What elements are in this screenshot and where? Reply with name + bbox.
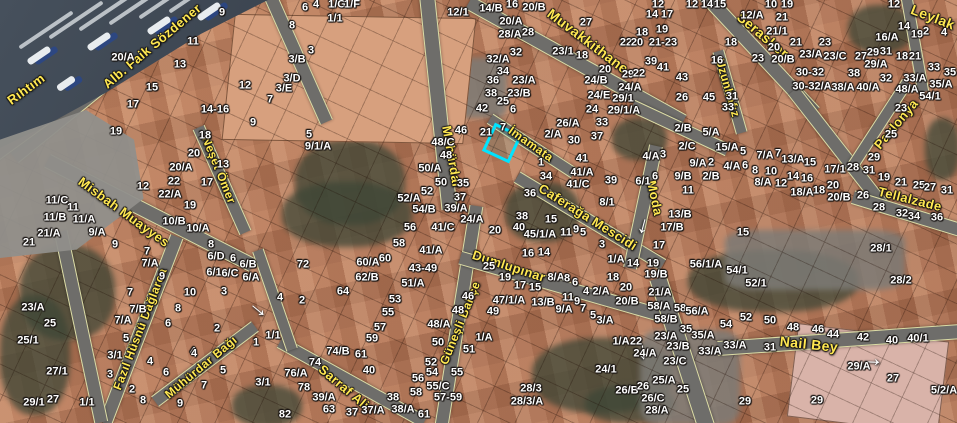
parcel-label: 42 — [857, 333, 869, 344]
parcel-label: 6 — [742, 161, 748, 172]
parcel-label: 56/A — [685, 307, 708, 318]
parcel-label: 4 — [147, 357, 153, 368]
map-viewport[interactable]: RıhtımAlb. Faik SözdenerMisbah MuayyesNe… — [0, 0, 957, 423]
parcel-label: 33/A — [723, 341, 746, 352]
parcel-label: 9/1/A — [305, 142, 331, 153]
parcel-label: 14 — [701, 0, 713, 11]
parcel-label: 17 — [514, 281, 526, 292]
parcel-label: 12/A — [740, 11, 763, 22]
parcel-label: 10/B — [162, 217, 185, 228]
parcel-label: 2/B — [674, 124, 691, 135]
parcel-label: 3/1 — [255, 378, 270, 389]
parcel-label: 10/A — [186, 224, 209, 235]
parcel-label: 7 — [144, 247, 150, 258]
parcel-label: 39/A — [312, 393, 335, 404]
parcel-label: 14/B — [479, 4, 502, 15]
parcel-label: 14 — [627, 259, 639, 270]
parcel-label: 16 — [801, 174, 813, 185]
parcel-label: 8 — [752, 166, 758, 177]
parcel-label: 64 — [337, 287, 349, 298]
parcel-label: 45/1/A — [524, 230, 556, 241]
parcel-label: 9/A — [689, 159, 706, 170]
parcel-label: 30 — [568, 136, 580, 147]
parcel-label: 52 — [740, 313, 752, 324]
parcel-label: 8 — [140, 396, 146, 407]
parcel-label: 1/F — [344, 0, 360, 11]
parcel-label: 21 — [790, 38, 802, 49]
parcel-label: 61 — [355, 350, 367, 361]
parcel-label: 54/1 — [919, 92, 940, 103]
parcel-label: 2 — [129, 385, 135, 396]
parcel-label: 23 — [895, 104, 907, 115]
parcel-label: 36 — [487, 76, 499, 87]
parcel-label: 60/A — [356, 258, 379, 269]
parcel-label: 53 — [389, 295, 401, 306]
parcel-label: 23/1 — [552, 47, 573, 58]
parcel-label: 6 — [165, 319, 171, 330]
parcel-label: 17/B — [660, 223, 683, 234]
parcel-label: 29/A — [864, 60, 887, 71]
parcel-label: 15 — [804, 158, 816, 169]
parcel-label: 31 — [764, 343, 776, 354]
parcel-label: 56 — [404, 223, 416, 234]
parcel-label: 1/1 — [327, 14, 342, 25]
parcel-label: 9/B — [674, 172, 691, 183]
parcel-label: 11/B — [44, 213, 67, 224]
parcel-label: 76/A — [284, 369, 307, 380]
parcel-label: 58 — [410, 388, 422, 399]
parcel-label: 29 — [739, 397, 751, 408]
parcel-label: 8/A — [754, 178, 771, 189]
parcel-label: 20 — [489, 226, 501, 237]
parcel-label: 57-59 — [434, 393, 462, 404]
parcel-label: 20/A — [169, 163, 192, 174]
parcel-label: 38/A — [391, 405, 414, 416]
parcel-label: 13/A — [781, 155, 804, 166]
parcel-label: 48/A — [427, 320, 450, 331]
parcel-label: 30-32 — [796, 68, 824, 79]
parcel-label: 30-32/A — [792, 82, 831, 93]
parcel-label: 20/B — [615, 297, 638, 308]
parcel-label: 19 — [184, 201, 196, 212]
parcel-label: 1 — [538, 158, 544, 169]
parcel-label: 3 — [599, 240, 605, 251]
parcel-label: 20/A — [499, 17, 522, 28]
parcel-label: 55 — [451, 368, 463, 379]
parcel-label: 48 — [787, 323, 799, 334]
parcel-label: 20/A — [111, 53, 134, 64]
parcel-label: 11 — [67, 203, 79, 214]
parcel-label: 46 — [812, 325, 824, 336]
parcel-label: 9/A — [88, 228, 105, 239]
parcel-label: 7 — [775, 149, 781, 160]
parcel-label: 41/C — [431, 223, 454, 234]
parcel-label: 18 — [199, 131, 211, 142]
parcel-label: 7/B — [129, 305, 146, 316]
parcel-label: 33 — [722, 103, 734, 114]
parcel-label: 24/B — [584, 76, 607, 87]
parcel-label: 21 — [23, 238, 35, 249]
parcel-label: 20 — [768, 43, 780, 54]
parcel-label: 34 — [540, 172, 552, 183]
parcel-label: 54 — [720, 320, 732, 331]
parcel-label: 14 — [787, 172, 799, 183]
parcel-label: 31 — [880, 47, 892, 58]
parcel-label: 33 — [928, 63, 940, 74]
parcel-label: 21 — [776, 13, 788, 24]
parcel-label: 1/A — [607, 255, 624, 266]
parcel-label: 39 — [645, 57, 657, 68]
parcel-label: 4/A — [723, 162, 740, 173]
parcel-label: 32 — [896, 209, 908, 220]
parcel-label: 21 — [909, 52, 921, 63]
parcel-label: 37 — [346, 408, 358, 419]
parcel-label: 32 — [880, 74, 892, 85]
parcel-label: 29/1/A — [608, 106, 640, 117]
parcel-label: 1/1 — [79, 398, 94, 409]
parcel-label: 5 — [740, 147, 746, 158]
parcel-label: 19 — [781, 0, 793, 11]
parcel-label: 50 — [432, 338, 444, 349]
parcel-label: 17 — [201, 178, 213, 189]
parcel-label: 27 — [580, 18, 592, 29]
parcel-label: 20 — [827, 181, 839, 192]
parcel-label: 41 — [576, 154, 588, 165]
parcel-label: 3/A — [596, 316, 613, 327]
parcel-label: 18 — [813, 186, 825, 197]
parcel-label: 26 — [637, 382, 649, 393]
parcel-label: 23/A — [21, 303, 44, 314]
parcel-label: 35 — [944, 68, 956, 79]
parcel-label: 82 — [279, 410, 291, 421]
parcel-label: 13 — [217, 160, 229, 171]
parcel-label: 49 — [487, 307, 499, 318]
parcel-label: 32/A — [486, 55, 509, 66]
parcel-label: 3 — [107, 370, 113, 381]
parcel-label: 22/A — [158, 190, 181, 201]
parcel-label: 21/A — [37, 229, 60, 240]
parcel-label: 38 — [848, 69, 860, 80]
parcel-label: 21/1 — [766, 27, 787, 38]
parcel-label: 11/A — [73, 215, 96, 226]
parcel-label: 7/A — [141, 259, 158, 270]
parcel-label: 3 — [221, 287, 227, 298]
parcel-label: 2/B — [702, 172, 719, 183]
parcel-label: 26 — [857, 191, 869, 202]
parcel-label: 7/A — [114, 316, 131, 327]
parcel-label: 43-49 — [409, 264, 437, 275]
parcel-label: 23/C — [823, 52, 846, 63]
parcel-label: 25/1 — [17, 336, 38, 347]
parcel-label: 58 — [393, 239, 405, 250]
parcel-label: 20 — [188, 149, 200, 160]
parcel-label: 24/A — [460, 215, 483, 226]
parcel-label: 27 — [887, 374, 899, 385]
parcel-label: 8 — [208, 240, 214, 251]
parcel-label: 3/B — [288, 55, 305, 66]
parcel-label: 11 — [562, 293, 574, 304]
parcel-label: 40 — [886, 336, 898, 347]
parcel-label: 11 — [560, 228, 572, 239]
parcel-label: 23/C — [663, 357, 686, 368]
parcel-label: 17 — [661, 10, 673, 21]
parcel-label: 28/A — [645, 406, 668, 417]
parcel-label: 59 — [366, 334, 378, 345]
parcel-label: 34 — [908, 212, 920, 223]
parcel-label: 21/A — [648, 288, 671, 299]
parcel-label: 7 — [267, 95, 273, 106]
parcel-label: 29/1 — [612, 94, 633, 105]
parcel-label: 26/B — [615, 386, 638, 397]
parcel-label: 38 — [387, 393, 399, 404]
parcel-label: 12 — [239, 81, 251, 92]
parcel-label: 48 — [452, 306, 464, 317]
parcel-label: 19 — [911, 30, 923, 41]
parcel-label: 54/1 — [726, 266, 747, 277]
parcel-label: 8 — [289, 21, 295, 32]
parcel-label: 63 — [323, 405, 335, 416]
parcel-label: 40 — [363, 366, 375, 377]
parcel-label: 60 — [379, 254, 391, 265]
parcel-label: 2/A — [592, 287, 609, 298]
parcel-label: 29/1 — [23, 398, 44, 409]
parcel-label: 7 — [580, 304, 586, 315]
parcel-label: 8 — [175, 304, 181, 315]
parcel-label: 6 — [230, 254, 236, 265]
parcel-label: 72 — [297, 260, 309, 271]
parcel-label: 6/1 — [635, 177, 650, 188]
parcel-label: 23/A — [512, 76, 535, 87]
parcel-label: 43 — [676, 73, 688, 84]
parcel-label: 54 — [426, 368, 438, 379]
parcel-label: 9 — [219, 8, 225, 19]
parcel-label: 44 — [827, 330, 839, 341]
parcel-label: 11 — [682, 186, 694, 197]
parcel-label: 15 — [146, 83, 158, 94]
parcel-label: 9/A — [555, 305, 572, 316]
parcel-label: 6 — [163, 368, 169, 379]
parcel-label: 41/A — [419, 246, 442, 257]
parcel-label: 35 — [680, 325, 692, 336]
parcel-label: 35 — [457, 179, 469, 190]
parcel-label: 48 — [440, 151, 452, 162]
parcel-label: 37 — [591, 132, 603, 143]
parcel-label: 3/E — [276, 84, 293, 95]
parcel-label: 26/C — [641, 394, 664, 405]
parcel-label: 4 — [583, 287, 589, 298]
parcel-label: 55 — [382, 308, 394, 319]
parcel-label: 48/C — [431, 138, 454, 149]
parcel-label: 51 — [463, 345, 475, 356]
parcel-label: 52 — [421, 187, 433, 198]
parcel-label: 28/3 — [520, 384, 541, 395]
parcel-label: 18 — [607, 273, 619, 284]
parcel-label: 20/B — [771, 55, 794, 66]
parcel-label: 15/A — [715, 143, 738, 154]
parcel-label: 9 — [250, 118, 256, 129]
parcel-label: 10 — [184, 288, 196, 299]
parcel-label: 29 — [867, 48, 879, 59]
parcel-label: 74 — [309, 358, 321, 369]
parcel-label: 54/B — [412, 205, 435, 216]
parcel-label: 18 — [576, 51, 588, 62]
parcel-label: 6/D — [207, 252, 224, 263]
parcel-label: 9 — [573, 225, 579, 236]
parcel-label: 28/3/A — [511, 397, 543, 408]
parcel-label: 4 — [313, 0, 319, 11]
parcel-label: 6 — [572, 278, 578, 289]
parcel-label: 23/B — [507, 89, 530, 100]
parcel-label: 22 — [168, 177, 180, 188]
parcel-label: 1 — [253, 338, 259, 349]
parcel-label: 33 — [596, 118, 608, 129]
parcel-label: 1/1 — [265, 331, 280, 342]
parcel-label: 17/1 — [824, 165, 845, 176]
parcel-label: 16 — [506, 0, 518, 11]
parcel-label: 27/1 — [46, 367, 67, 378]
parcel-label: 29 — [868, 153, 880, 164]
parcel-label: 32 — [510, 48, 522, 59]
parcel-label: 16 — [711, 56, 723, 67]
parcel-label: 46 — [462, 292, 474, 303]
parcel-label: 37/A — [361, 406, 384, 417]
parcel-label: 4 — [277, 293, 283, 304]
parcel-label: 5/2/A — [931, 386, 957, 397]
parcel-label: 6 — [302, 3, 308, 14]
parcel-label: 42 — [476, 104, 488, 115]
parcel-label: 35/A — [691, 331, 714, 342]
parcel-label: 12 — [137, 182, 149, 193]
parcel-label: 78 — [298, 383, 310, 394]
parcel-label: 16 — [522, 249, 534, 260]
parcel-label: 38/A — [831, 83, 854, 94]
parcel-label: 41/C — [566, 180, 589, 191]
parcel-label: 18 — [896, 52, 908, 63]
parcel-label: 15 — [714, 0, 726, 11]
parcel-label: 9 — [177, 399, 183, 410]
parcel-label: 18/A — [790, 188, 813, 199]
parcel-label: 16/A — [875, 33, 898, 44]
parcel-label: 22 — [633, 69, 645, 80]
parcel-label: 24/E — [588, 91, 611, 102]
parcel-label: 21 — [480, 128, 492, 139]
parcel-label: 36 — [931, 213, 943, 224]
parcel-label: 28 — [873, 203, 885, 214]
parcel-label: 40/A — [856, 83, 879, 94]
parcel-label: 6 — [652, 172, 658, 183]
parcel-label: 2 — [923, 27, 929, 38]
parcel-label: 5 — [306, 130, 312, 141]
parcel-label: 36 — [524, 189, 536, 200]
parcel-label: 1/A — [475, 333, 492, 344]
parcel-label: 13/B — [531, 298, 554, 309]
parcel-label: 24 — [586, 105, 598, 116]
parcel-label: 22 — [630, 337, 642, 348]
parcel-label: 5 — [220, 366, 226, 377]
parcel-label: 2/A — [544, 130, 561, 141]
parcel-label: 74/B — [326, 347, 349, 358]
parcel-label: 7/A — [756, 151, 773, 162]
parcel-label: 46 — [455, 126, 467, 137]
parcel-label: 48/A — [895, 85, 918, 96]
parcel-label: 6/1 — [206, 268, 221, 279]
parcel-label: 62/B — [355, 273, 378, 284]
parcel-label: 3/1 — [107, 351, 122, 362]
parcel-label: 1/A — [612, 337, 629, 348]
parcel-label: 5/A — [702, 128, 719, 139]
parcel-label: 11/C — [46, 196, 69, 207]
parcel-label: 8/A — [547, 273, 564, 284]
parcel-label: 52/1 — [745, 279, 766, 290]
parcel-label: 9 — [159, 272, 165, 283]
parcel-label: 24/A — [633, 349, 656, 360]
parcel-label: 15 — [545, 215, 557, 226]
parcel-label: 29 — [811, 396, 823, 407]
parcel-label: 3 — [660, 150, 666, 161]
parcel-label: 10 — [765, 0, 777, 11]
parcel-label: 14 — [538, 248, 550, 259]
parcel-label: 2 — [299, 296, 305, 307]
parcel-label: 14 — [898, 22, 910, 33]
parcel-label: 8/1 — [599, 198, 614, 209]
parcel-label: 23/B — [666, 342, 689, 353]
parcel-label: 40/1 — [907, 334, 928, 345]
parcel-label: 24/1 — [595, 365, 616, 376]
parcel-label: 2 — [214, 324, 220, 335]
parcel-label: 50 — [764, 316, 776, 327]
parcel-label: 20/B — [827, 193, 850, 204]
parcel-label: 31 — [941, 186, 953, 197]
parcel-label: 15 — [529, 283, 541, 294]
parcel-label: 56/1/A — [690, 260, 722, 271]
parcel-label: 6 — [510, 105, 516, 116]
parcel-label: 7 — [500, 123, 506, 134]
parcel-label: 4 — [191, 349, 197, 360]
parcel-label: 27 — [924, 183, 936, 194]
parcel-label: 21 — [895, 178, 907, 189]
parcel-label: 21-23 — [649, 38, 677, 49]
parcel-label: 12 — [775, 179, 787, 190]
parcel-label: 41/A — [570, 168, 593, 179]
parcel-label: 7 — [201, 381, 207, 392]
parcel-label: 4 — [941, 28, 947, 39]
parcel-label: 51/A — [401, 279, 424, 290]
parcel-label: 50 — [435, 178, 447, 189]
parcel-label: 33/A — [698, 347, 721, 358]
parcel-label: 28/2 — [890, 276, 911, 287]
parcel-label: 12/1 — [447, 8, 468, 19]
parcel-label: 17 — [127, 100, 139, 111]
parcel-label: 2/C — [678, 142, 695, 153]
parcel-label: 14-16 — [201, 105, 229, 116]
parcel-label: 20 — [631, 38, 643, 49]
parcel-label: 41 — [657, 63, 669, 74]
parcel-label: 19 — [499, 273, 511, 284]
parcel-label: 39 — [605, 176, 617, 187]
parcel-label: 13 — [174, 60, 186, 71]
parcel-label: 11 — [187, 37, 199, 48]
parcel-label: 19/B — [644, 270, 667, 281]
parcel-label: 12 — [686, 0, 698, 11]
parcel-label: 35/A — [929, 80, 952, 91]
parcel-label: 7 — [127, 288, 133, 299]
parcel-label: 5 — [580, 228, 586, 239]
parcel-label: 6/C — [221, 269, 238, 280]
parcel-label: 28/1 — [870, 244, 891, 255]
parcel-label: 25 — [44, 319, 56, 330]
parcel-label: 2 — [708, 158, 714, 169]
parcel-label: 31 — [863, 166, 875, 177]
